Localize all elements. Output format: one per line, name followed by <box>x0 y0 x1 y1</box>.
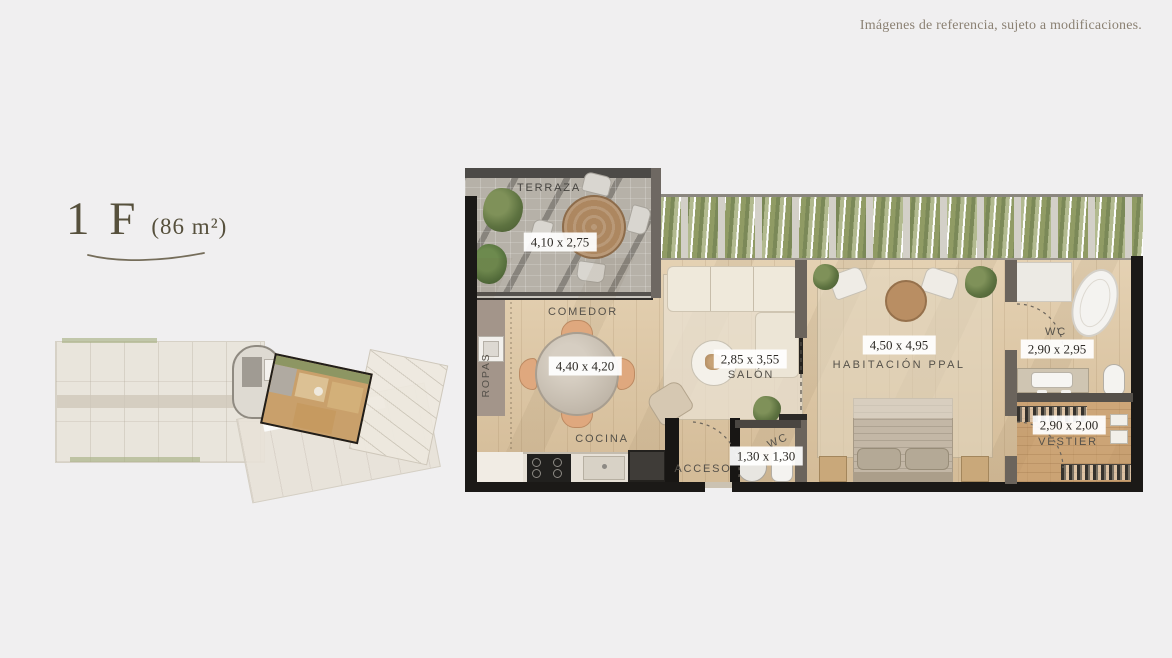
bedroom-round-table <box>885 280 927 322</box>
wall <box>1005 260 1017 302</box>
keyplan-garden-strip <box>70 457 200 462</box>
fridge-icon <box>628 450 666 482</box>
wall <box>735 420 801 428</box>
vanity-sink <box>1031 372 1073 388</box>
wall <box>1017 393 1133 402</box>
wc-ppal-label: WC <box>1045 326 1067 338</box>
hanging-clothes-rack <box>1061 464 1131 480</box>
sliding-door <box>477 292 653 300</box>
kitchen-counter-end <box>477 452 523 484</box>
keyplan-unit-room <box>294 373 328 403</box>
keyplan-garden-strip <box>62 338 157 343</box>
door-leaf <box>799 338 803 374</box>
comedor-label: COMEDOR <box>548 306 618 318</box>
terrace-chair <box>576 260 607 284</box>
pillow <box>857 448 901 470</box>
wall <box>1131 256 1143 492</box>
comedor-dimension: 4,40 x 4,20 <box>549 357 622 376</box>
wall <box>465 482 705 492</box>
pergola-beam <box>465 168 657 178</box>
salon-label: SALÓN <box>728 369 774 381</box>
wc-shelf <box>779 414 807 420</box>
toilet-icon <box>1103 364 1125 396</box>
vestier-label: VESTIER <box>1038 436 1098 448</box>
unit-title-block: 1 F (86 m²) <box>66 196 227 243</box>
faucet-icon <box>602 464 607 469</box>
building-keyplan <box>40 335 452 510</box>
habitacion-label: HABITACIÓN PPAL <box>833 359 966 371</box>
keyplan-stairs <box>242 357 262 387</box>
salon-dimension: 2,85 x 3,55 <box>714 350 787 369</box>
disclaimer-text: Imágenes de referencia, sujeto a modific… <box>860 18 1142 34</box>
bathroom-cabinet <box>1010 262 1072 302</box>
wc-ppal-dimension: 2,90 x 2,95 <box>1021 340 1094 359</box>
terraza-dimension: 4,10 x 2,75 <box>524 233 597 252</box>
terraza-label: TERRAZA <box>517 182 581 194</box>
unit-name: 1 F <box>66 196 139 243</box>
cocina-label: COCINA <box>575 433 629 445</box>
nightstand <box>961 456 989 482</box>
bed-blanket-fold <box>853 398 953 418</box>
folded-clothes-shelf <box>1110 430 1128 444</box>
wall <box>651 168 661 298</box>
wc-acceso-dimension: 1,30 x 1,30 <box>730 447 803 466</box>
wall <box>732 482 1143 492</box>
ropas-label: ROPAS <box>480 353 492 398</box>
vestier-dimension: 2,90 x 2,00 <box>1033 416 1106 435</box>
planter-facade-strip <box>651 194 1143 260</box>
habitacion-dimension: 4,50 x 4,95 <box>863 336 936 355</box>
stove-icon <box>527 454 571 482</box>
nightstand <box>819 456 847 482</box>
wall <box>795 260 807 338</box>
unit-floor-plan: TERRAZA 4,10 x 2,75 COMEDOR 4,40 x 4,20 … <box>465 166 1143 492</box>
keyplan-unit-terrace <box>269 364 297 396</box>
pillow <box>905 448 949 470</box>
acceso-label: ACCESO <box>674 463 731 475</box>
sofa <box>667 266 799 312</box>
wall <box>1005 456 1017 484</box>
unit-area: (86 m²) <box>151 214 227 240</box>
folded-clothes-shelf <box>1110 414 1128 426</box>
entry-door-sill <box>705 482 732 488</box>
wall <box>465 196 477 492</box>
title-underline-swoosh <box>86 250 206 264</box>
wall <box>1005 350 1017 416</box>
keyplan-unit-room <box>327 382 364 414</box>
